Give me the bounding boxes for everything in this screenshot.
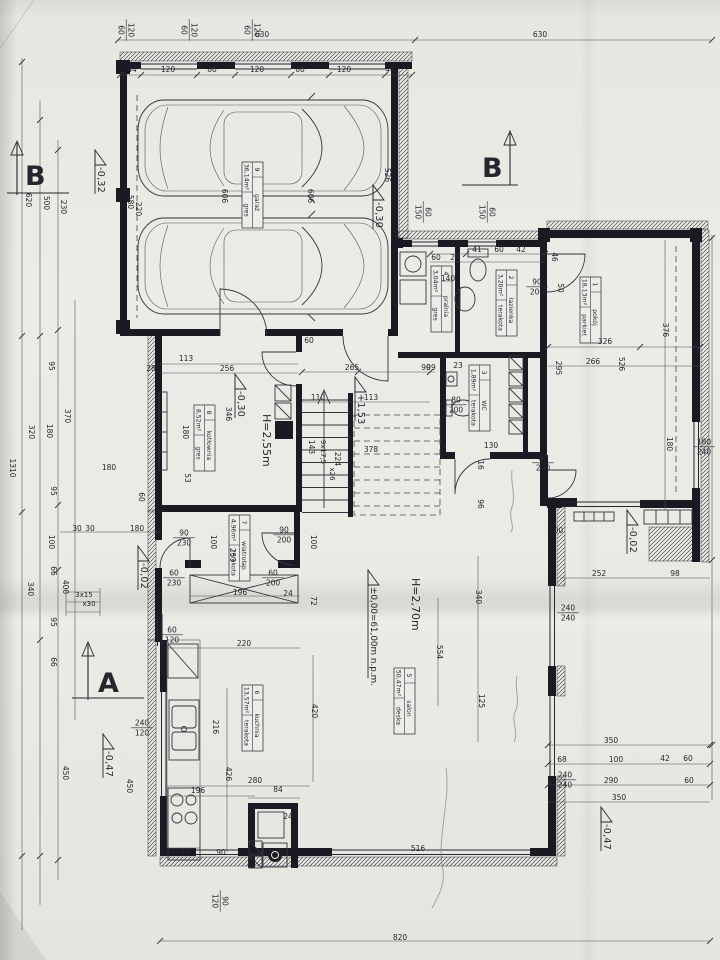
- dimension-label: 28: [450, 253, 460, 262]
- dimension-label: 46: [550, 252, 559, 262]
- dimension-label: 180: [102, 463, 117, 472]
- svg-text:parkiet: parkiet: [581, 314, 588, 336]
- svg-text:46: 46: [550, 252, 559, 262]
- dimension-label: 60: [683, 754, 693, 763]
- svg-text:+1,53: +1,53: [355, 394, 366, 425]
- svg-text:60: 60: [424, 207, 433, 217]
- svg-text:340: 340: [474, 590, 483, 605]
- dimension-label: 196: [233, 588, 248, 597]
- svg-text:53: 53: [183, 473, 192, 483]
- svg-text:H=2,70m: H=2,70m: [409, 578, 422, 631]
- svg-text:gres: gres: [243, 203, 250, 216]
- svg-text:80: 80: [207, 65, 217, 74]
- svg-text:630: 630: [533, 30, 548, 39]
- svg-text:350: 350: [612, 793, 627, 802]
- svg-text:554: 554: [435, 645, 444, 660]
- dimension-label: 113: [179, 354, 194, 363]
- svg-text:1310: 1310: [8, 458, 17, 477]
- svg-text:376: 376: [661, 323, 670, 338]
- dimension-label: 220: [134, 202, 143, 217]
- opening-size-label: 90230: [173, 529, 195, 548]
- svg-text:3x15: 3x15: [75, 591, 93, 599]
- svg-text:150: 150: [478, 205, 487, 220]
- dimension-label: 340: [26, 582, 35, 597]
- svg-text:36,14m²: 36,14m²: [243, 164, 250, 191]
- dimension-label: 72: [309, 596, 318, 606]
- svg-text:180: 180: [665, 437, 674, 452]
- dimension-label: 230: [59, 200, 68, 215]
- svg-text:30: 30: [72, 524, 82, 533]
- svg-text:378: 378: [364, 445, 379, 454]
- svg-text:garaż: garaż: [253, 194, 260, 211]
- svg-text:30: 30: [85, 524, 95, 533]
- svg-text:13,57m²: 13,57m²: [243, 687, 250, 714]
- dimension-label: 140: [441, 274, 456, 283]
- svg-text:72: 72: [309, 596, 318, 606]
- dimension-label: 100: [549, 526, 564, 535]
- dimension-label: 143: [307, 440, 316, 455]
- svg-text:500: 500: [42, 196, 51, 211]
- svg-text:295: 295: [554, 361, 563, 376]
- svg-text:253: 253: [228, 548, 237, 563]
- svg-text:120: 120: [190, 23, 199, 38]
- svg-text:200: 200: [449, 406, 464, 415]
- svg-text:x26: x26: [328, 467, 336, 481]
- level-marker: -0,47: [103, 734, 114, 778]
- dimension-label: 90: [216, 848, 226, 857]
- svg-text:łazienka: łazienka: [507, 298, 514, 324]
- svg-text:240: 240: [135, 719, 150, 728]
- svg-text:60: 60: [167, 626, 177, 635]
- svg-text:80: 80: [538, 454, 548, 463]
- svg-text:200: 200: [536, 464, 551, 473]
- dimension-label: 23: [453, 361, 463, 370]
- svg-text:265: 265: [345, 363, 360, 372]
- dimension-label: 95: [49, 617, 58, 627]
- svg-text:120: 120: [135, 729, 150, 738]
- svg-text:120: 120: [161, 65, 176, 74]
- svg-text:8,52m²: 8,52m²: [195, 409, 202, 432]
- dimension-label: 42: [516, 245, 526, 254]
- dimension-label: 60: [431, 253, 441, 262]
- dimension-label: 60: [494, 245, 504, 254]
- svg-text:230: 230: [59, 200, 68, 215]
- svg-text:42: 42: [660, 754, 670, 763]
- svg-text:gres: gres: [195, 446, 202, 459]
- dimension-label: 180: [130, 524, 145, 533]
- svg-text:125: 125: [477, 694, 486, 709]
- svg-text:68: 68: [557, 755, 567, 764]
- svg-text:256: 256: [220, 364, 235, 373]
- svg-text:90: 90: [221, 896, 230, 906]
- svg-text:240: 240: [561, 604, 576, 613]
- dimension-label: 84: [273, 785, 283, 794]
- dimension-label: 350: [604, 736, 619, 745]
- dimension-label: 224: [333, 452, 342, 467]
- dimension-label: 24: [283, 589, 293, 598]
- room-label-1: 1pokój18,13m²parkiet: [580, 277, 601, 343]
- svg-text:-0,30: -0,30: [235, 391, 246, 417]
- dimension-label: 42: [660, 754, 670, 763]
- svg-text:113: 113: [179, 354, 194, 363]
- dimension-label: 376: [661, 323, 670, 338]
- dimension-label: 41: [472, 245, 482, 254]
- section-marker-b: B: [462, 131, 518, 185]
- svg-text:3,20m²: 3,20m²: [497, 274, 504, 297]
- dimension-label: 500: [42, 196, 51, 211]
- dimension-label: 16: [476, 460, 485, 470]
- svg-text:180: 180: [181, 425, 190, 440]
- dimension-label: 120: [337, 65, 352, 74]
- svg-text:WC: WC: [480, 400, 487, 410]
- dimension-label: 1310: [8, 458, 17, 477]
- dimension-label: 180: [181, 425, 190, 440]
- svg-text:606: 606: [306, 189, 315, 204]
- svg-text:140: 140: [441, 274, 456, 283]
- svg-text:526: 526: [617, 357, 626, 372]
- svg-text:60: 60: [304, 336, 314, 345]
- dimension-label: 60: [137, 492, 146, 502]
- dimension-label: 50: [556, 283, 565, 293]
- svg-text:kuchnia: kuchnia: [253, 713, 260, 737]
- dimension-label: 554: [435, 645, 444, 660]
- room-label-3: 3WC1,89m²terakota: [469, 365, 490, 431]
- door-swings: [160, 254, 585, 568]
- svg-text:450: 450: [61, 766, 70, 781]
- svg-text:90: 90: [179, 529, 189, 538]
- svg-text:120: 120: [165, 636, 180, 645]
- dimension-label: 340: [474, 590, 483, 605]
- dimension-label: 350: [612, 793, 627, 802]
- svg-text:18,13m²: 18,13m²: [581, 279, 588, 306]
- svg-text:120: 120: [337, 65, 352, 74]
- dimension-label: 44: [127, 65, 137, 74]
- svg-text:90: 90: [532, 278, 542, 287]
- kitchen-sink: [169, 700, 199, 760]
- dimension-label: 426: [224, 767, 233, 782]
- svg-text:60: 60: [137, 492, 146, 502]
- svg-text:5: 5: [405, 674, 412, 678]
- svg-text:180: 180: [45, 424, 54, 439]
- svg-text:280: 280: [248, 776, 263, 785]
- dimension-label: 290: [604, 776, 619, 785]
- svg-text:60: 60: [268, 569, 278, 578]
- svg-text:220: 220: [134, 202, 143, 217]
- svg-text:24: 24: [283, 589, 293, 598]
- svg-text:9x17,5: 9x17,5: [319, 440, 327, 464]
- svg-text:230: 230: [167, 579, 182, 588]
- svg-text:70: 70: [180, 848, 190, 857]
- level-marker: +1,53: [355, 377, 366, 425]
- dimension-label: 66: [49, 657, 58, 667]
- svg-text:-0,47: -0,47: [601, 824, 612, 850]
- svg-text:180: 180: [130, 524, 145, 533]
- svg-text:340: 340: [26, 582, 35, 597]
- svg-text:320: 320: [27, 425, 36, 440]
- svg-text:224: 224: [333, 452, 342, 467]
- section-marker-a: A: [72, 642, 144, 700]
- opening-size-label: 90120: [211, 890, 230, 912]
- svg-text:180: 180: [697, 438, 712, 447]
- dimension-label: 295: [554, 361, 563, 376]
- svg-text:-0,30: -0,30: [373, 202, 384, 228]
- svg-text:pokój: pokój: [591, 309, 599, 326]
- svg-text:326: 326: [598, 337, 613, 346]
- dimension-label: 98: [670, 569, 680, 578]
- svg-text:580: 580: [126, 195, 135, 210]
- opening-size-label: 60150: [414, 201, 433, 223]
- svg-text:196: 196: [191, 786, 206, 795]
- svg-text:350: 350: [604, 736, 619, 745]
- svg-text:gres: gres: [432, 307, 439, 320]
- dimension-label: 370: [63, 409, 72, 424]
- svg-text:6: 6: [253, 691, 260, 695]
- svg-text:526: 526: [383, 168, 392, 183]
- dimension-label: 180: [665, 437, 674, 452]
- svg-text:60: 60: [494, 245, 504, 254]
- svg-text:606: 606: [220, 189, 229, 204]
- svg-text:100: 100: [47, 535, 56, 550]
- dimension-label: 196: [191, 786, 206, 795]
- dimension-label: 420: [310, 704, 319, 719]
- opening-size-label: 180240: [693, 438, 715, 457]
- dimension-label: 326: [598, 337, 613, 346]
- svg-text:2: 2: [507, 276, 514, 280]
- svg-text:24: 24: [283, 812, 293, 821]
- dimension-label: 80: [207, 65, 217, 74]
- svg-text:terakota: terakota: [243, 720, 250, 746]
- svg-text:110: 110: [311, 393, 326, 402]
- svg-text:60: 60: [488, 207, 497, 217]
- svg-text:100: 100: [609, 755, 624, 764]
- svg-text:370: 370: [63, 409, 72, 424]
- dimension-label: 120: [161, 65, 176, 74]
- dimension-label: 606: [306, 189, 315, 204]
- svg-text:8: 8: [205, 411, 212, 415]
- svg-text:200: 200: [530, 288, 545, 297]
- dimension-label: 630: [533, 30, 548, 39]
- room-label-9: 9garaż36,14m²gres: [242, 162, 263, 228]
- dimension-label: 68: [557, 755, 567, 764]
- svg-text:B: B: [25, 161, 46, 192]
- level-marker: -0,47: [601, 807, 612, 851]
- svg-text:B: B: [482, 153, 503, 184]
- svg-text:420: 420: [310, 704, 319, 719]
- dimension-label: 252: [592, 569, 607, 578]
- svg-text:-0,32: -0,32: [95, 167, 106, 193]
- svg-text:66: 66: [49, 657, 58, 667]
- level-marker: -0,32: [95, 150, 106, 194]
- floor-plan-svg: 1pokój18,13m²parkiet2łazienka3,20m²terak…: [0, 0, 720, 960]
- room-label-5: 5salon50,47m²deska: [394, 668, 415, 734]
- opening-size-label: 80200: [445, 396, 467, 415]
- stair-note: x26: [328, 467, 336, 481]
- svg-text:A: A: [98, 668, 119, 699]
- opening-size-label: 240240: [557, 604, 579, 623]
- svg-text:4,96m²: 4,96m²: [230, 519, 237, 542]
- dimension-label: 53: [183, 473, 192, 483]
- svg-text:130: 130: [484, 441, 499, 450]
- svg-text:252: 252: [592, 569, 607, 578]
- dimension-label: 516: [411, 844, 426, 853]
- dimension-label: 95: [47, 361, 56, 371]
- dimension-label: 130: [484, 441, 499, 450]
- svg-text:240: 240: [561, 614, 576, 623]
- dimension-label: 60: [684, 776, 694, 785]
- room-label-6: 6kuchnia13,57m²terakota: [242, 685, 263, 751]
- svg-text:100: 100: [309, 535, 318, 550]
- svg-text:95: 95: [49, 617, 58, 627]
- dimension-label: 28: [146, 364, 156, 373]
- svg-text:23: 23: [453, 361, 463, 370]
- svg-text:3,04m²: 3,04m²: [432, 270, 439, 293]
- svg-text:x30: x30: [82, 600, 95, 608]
- stair-note: 9x17,5: [319, 440, 327, 464]
- svg-text:pralnia: pralnia: [442, 296, 449, 318]
- svg-text:120: 120: [253, 23, 262, 38]
- svg-text:50,47m²: 50,47m²: [395, 670, 402, 697]
- dimension-label: 95: [49, 486, 58, 496]
- svg-text:-0,47: -0,47: [103, 751, 114, 777]
- svg-text:240: 240: [558, 781, 573, 790]
- svg-text:150: 150: [414, 205, 423, 220]
- dimension-label: 100: [47, 535, 56, 550]
- svg-text:terakota: terakota: [470, 400, 477, 426]
- dimension-label: 110: [311, 393, 326, 402]
- svg-text:42: 42: [516, 245, 526, 254]
- svg-text:44: 44: [127, 65, 137, 74]
- dimension-label: 30: [85, 524, 95, 533]
- svg-text:-0,02: -0,02: [627, 527, 638, 553]
- svg-text:400: 400: [61, 580, 70, 595]
- svg-text:820: 820: [393, 933, 408, 942]
- svg-text:28: 28: [146, 364, 156, 373]
- svg-text:220: 220: [237, 639, 252, 648]
- dimension-label: 526: [617, 357, 626, 372]
- svg-text:9: 9: [253, 168, 260, 172]
- svg-text:80: 80: [295, 65, 305, 74]
- svg-text:terakota: terakota: [497, 305, 504, 331]
- svg-text:95: 95: [49, 486, 58, 496]
- svg-text:200: 200: [277, 536, 292, 545]
- opening-size-label: 60200: [262, 569, 284, 588]
- dimension-label: 220: [237, 639, 252, 648]
- svg-text:100: 100: [209, 535, 218, 550]
- opening-size-label: 12060: [180, 19, 199, 41]
- svg-text:240: 240: [697, 448, 712, 457]
- svg-text:96: 96: [476, 499, 485, 509]
- dimension-label: 60: [304, 336, 314, 345]
- svg-text:50: 50: [556, 283, 565, 293]
- dimension-label: 280: [248, 776, 263, 785]
- svg-text:240: 240: [558, 771, 573, 780]
- dimension-label: 450: [125, 779, 134, 794]
- svg-text:620: 620: [24, 193, 33, 208]
- dimension-label: 378: [364, 445, 379, 454]
- svg-text:98: 98: [670, 569, 680, 578]
- svg-text:90: 90: [279, 526, 289, 535]
- dimension-label: 320: [27, 425, 36, 440]
- height-label: H=2,70m: [409, 578, 422, 631]
- dimension-label: 256: [220, 364, 235, 373]
- svg-text:1: 1: [591, 283, 598, 287]
- svg-text:1,89m²: 1,89m²: [470, 369, 477, 392]
- svg-text:wiatrołap: wiatrołap: [240, 541, 247, 570]
- scanned-floor-plan-page: 1pokój18,13m²parkiet2łazienka3,20m²terak…: [0, 0, 720, 960]
- svg-text:60: 60: [180, 25, 189, 35]
- level-marker: -0,02: [138, 546, 149, 590]
- dimension-label: 216: [211, 720, 220, 735]
- svg-text:80: 80: [451, 396, 461, 405]
- svg-text:60: 60: [169, 569, 179, 578]
- dimension-label: 44: [385, 65, 395, 74]
- opening-size-label: 60120: [161, 626, 183, 645]
- opening-size-label: 90200: [273, 526, 295, 545]
- opening-size-label: 60230: [163, 569, 185, 588]
- svg-text:salon: salon: [405, 700, 412, 717]
- dimension-label: 100: [609, 755, 624, 764]
- svg-text:180: 180: [102, 463, 117, 472]
- level-marker: ±0,00=61,00m n.p.m.: [368, 570, 379, 686]
- svg-text:deska: deska: [395, 707, 402, 725]
- svg-text:266: 266: [586, 357, 601, 366]
- svg-text:7: 7: [240, 521, 247, 525]
- svg-text:143: 143: [307, 440, 316, 455]
- dimension-label: 100: [209, 535, 218, 550]
- dimension-label: 820: [393, 933, 408, 942]
- dimension-label: 30: [72, 524, 82, 533]
- dimension-label: 100: [309, 535, 318, 550]
- svg-text:±0,00=61,00m n.p.m.: ±0,00=61,00m n.p.m.: [368, 587, 378, 686]
- room-label-8: 8kotłownia8,52m²gres: [194, 405, 215, 471]
- opening-size-label: 60150: [478, 201, 497, 223]
- dimension-label: 620: [24, 193, 33, 208]
- dimension-label: 450: [61, 766, 70, 781]
- svg-text:44: 44: [385, 65, 395, 74]
- svg-text:516: 516: [411, 844, 426, 853]
- stair-note: x30: [82, 600, 95, 608]
- svg-text:60: 60: [683, 754, 693, 763]
- dimension-label: 80: [295, 65, 305, 74]
- dimension-label: 526: [383, 168, 392, 183]
- room-label-2: 2łazienka3,20m²terakota: [496, 270, 517, 336]
- dimension-label: 265: [345, 363, 360, 372]
- level-marker: -0,30: [373, 185, 384, 229]
- dimension-label: 125: [477, 694, 486, 709]
- dimension-label: 24: [283, 812, 293, 821]
- dimension-label: 96: [476, 499, 485, 509]
- svg-text:230: 230: [177, 539, 192, 548]
- svg-text:60: 60: [117, 25, 126, 35]
- svg-text:120: 120: [127, 23, 136, 38]
- svg-text:3: 3: [480, 371, 487, 375]
- svg-text:60: 60: [243, 25, 252, 35]
- svg-text:120: 120: [250, 65, 265, 74]
- svg-text:450: 450: [125, 779, 134, 794]
- dimension-label: 580: [126, 195, 135, 210]
- svg-text:200: 200: [266, 579, 281, 588]
- svg-text:41: 41: [472, 245, 482, 254]
- washing-machine: [400, 252, 426, 304]
- svg-text:120: 120: [211, 894, 220, 909]
- svg-text:346: 346: [224, 407, 233, 422]
- level-marker: -0,02: [627, 510, 638, 554]
- svg-text:kotłownia: kotłownia: [205, 431, 212, 461]
- opening-size-label: 12060: [117, 19, 136, 41]
- dimension-label: 120: [250, 65, 265, 74]
- dimension-label: 180: [45, 424, 54, 439]
- height-label: H=2,55m: [260, 414, 273, 467]
